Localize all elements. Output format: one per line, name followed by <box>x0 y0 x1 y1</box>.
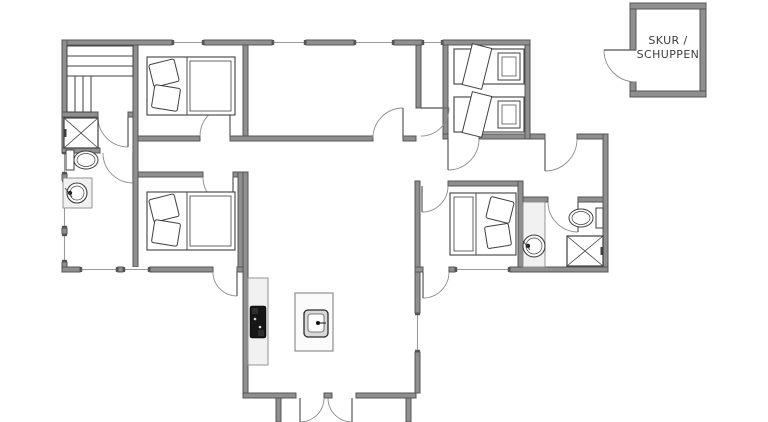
entrance-door-right <box>328 398 352 422</box>
wall <box>603 134 608 272</box>
toilet-right <box>569 208 603 228</box>
single-bed-top <box>454 44 524 90</box>
wall <box>138 136 200 141</box>
twin-bedroom-door <box>448 139 479 170</box>
shed-label-line2: SCHUPPEN <box>637 48 700 61</box>
wall <box>525 45 530 139</box>
wall <box>518 181 523 267</box>
window <box>354 40 394 45</box>
wall <box>62 112 98 117</box>
door-swing-arc <box>300 398 324 422</box>
door-swing-arc <box>604 50 636 82</box>
door-swing-arc <box>98 117 128 147</box>
window <box>123 267 150 272</box>
window <box>172 40 204 45</box>
wall <box>443 40 530 45</box>
shed-label-line1: SKUR / <box>648 34 687 47</box>
toilet-left <box>66 150 98 170</box>
pillow <box>484 223 511 248</box>
wall <box>243 393 296 398</box>
shower-stall-right <box>567 236 603 266</box>
toilet-tank <box>66 150 74 170</box>
floor-plan-layers <box>62 3 706 422</box>
window <box>415 313 420 352</box>
wall <box>62 228 67 234</box>
wing-entrance-door <box>545 139 577 171</box>
sauna-bench-side <box>67 76 91 112</box>
wall <box>306 40 354 45</box>
wall <box>394 40 422 45</box>
shower-stall-left <box>64 118 98 148</box>
entrance-door-left <box>300 398 324 422</box>
wall <box>230 136 373 141</box>
wall <box>403 136 416 141</box>
wall <box>630 91 706 97</box>
terrace-door-left <box>213 272 237 296</box>
wall <box>150 267 213 272</box>
terrace-door-right <box>423 272 449 298</box>
wall <box>415 267 423 272</box>
window <box>272 40 306 45</box>
wall <box>133 45 138 267</box>
floor-plan-page: SKUR / SCHUPPEN <box>0 0 768 422</box>
door-swing-arc <box>423 272 449 298</box>
bathroom-left-door <box>103 153 133 183</box>
window <box>455 267 510 272</box>
wall <box>276 398 281 422</box>
window <box>422 40 443 45</box>
door-swing-arc <box>373 108 403 138</box>
wall <box>62 267 80 272</box>
wall <box>443 134 448 139</box>
shed-door <box>604 50 636 82</box>
wall <box>523 197 548 202</box>
wall <box>406 398 411 422</box>
living-dining-door <box>373 108 403 138</box>
window <box>62 234 67 262</box>
wall <box>443 45 448 134</box>
wall <box>243 172 248 393</box>
wall <box>62 40 172 45</box>
toilet-tank <box>596 208 603 228</box>
wall <box>577 134 603 139</box>
door-swing-arc <box>448 139 479 170</box>
wall <box>415 352 420 393</box>
wall <box>138 172 203 177</box>
wall <box>479 134 525 139</box>
bed-blanket <box>454 197 473 251</box>
bedroom-right-door <box>422 186 448 212</box>
floor-plan: SKUR / SCHUPPEN <box>0 0 768 422</box>
door-swing-arc <box>328 398 352 422</box>
window <box>80 267 118 272</box>
wall <box>415 181 420 267</box>
wall <box>324 393 332 398</box>
sauna-door <box>98 117 128 147</box>
door-swing-arc <box>422 186 448 212</box>
wall <box>118 267 123 272</box>
washbasin-left <box>63 178 92 208</box>
bed-blanket <box>190 196 231 246</box>
cooktop <box>250 306 266 338</box>
wall <box>238 172 243 267</box>
wall <box>630 3 706 9</box>
door-swing-arc <box>103 153 133 183</box>
wall <box>356 393 416 398</box>
single-bed-bottom <box>454 92 524 138</box>
wall <box>630 9 636 50</box>
pillow <box>151 85 180 112</box>
kitchen-sink <box>304 310 328 337</box>
wall <box>630 82 636 91</box>
sink-tap <box>316 321 320 325</box>
wall <box>416 45 421 108</box>
sauna-bench-top <box>67 46 133 76</box>
double-bed-right <box>450 193 516 255</box>
wall <box>243 45 248 136</box>
door-swing-arc <box>545 139 577 171</box>
pillow <box>151 220 180 247</box>
wall <box>448 181 518 186</box>
bed-blanket <box>190 61 231 111</box>
wall <box>530 134 545 139</box>
wall <box>578 197 603 202</box>
double-bed-top-left <box>147 57 235 115</box>
wall <box>700 9 706 91</box>
wall <box>415 272 420 313</box>
double-bed-bottom-left <box>147 192 235 250</box>
door-swing-arc <box>213 272 237 296</box>
washbasin-right <box>523 202 545 267</box>
wall <box>510 267 608 272</box>
wall <box>449 267 455 272</box>
wall <box>204 40 272 45</box>
wall <box>128 112 133 117</box>
